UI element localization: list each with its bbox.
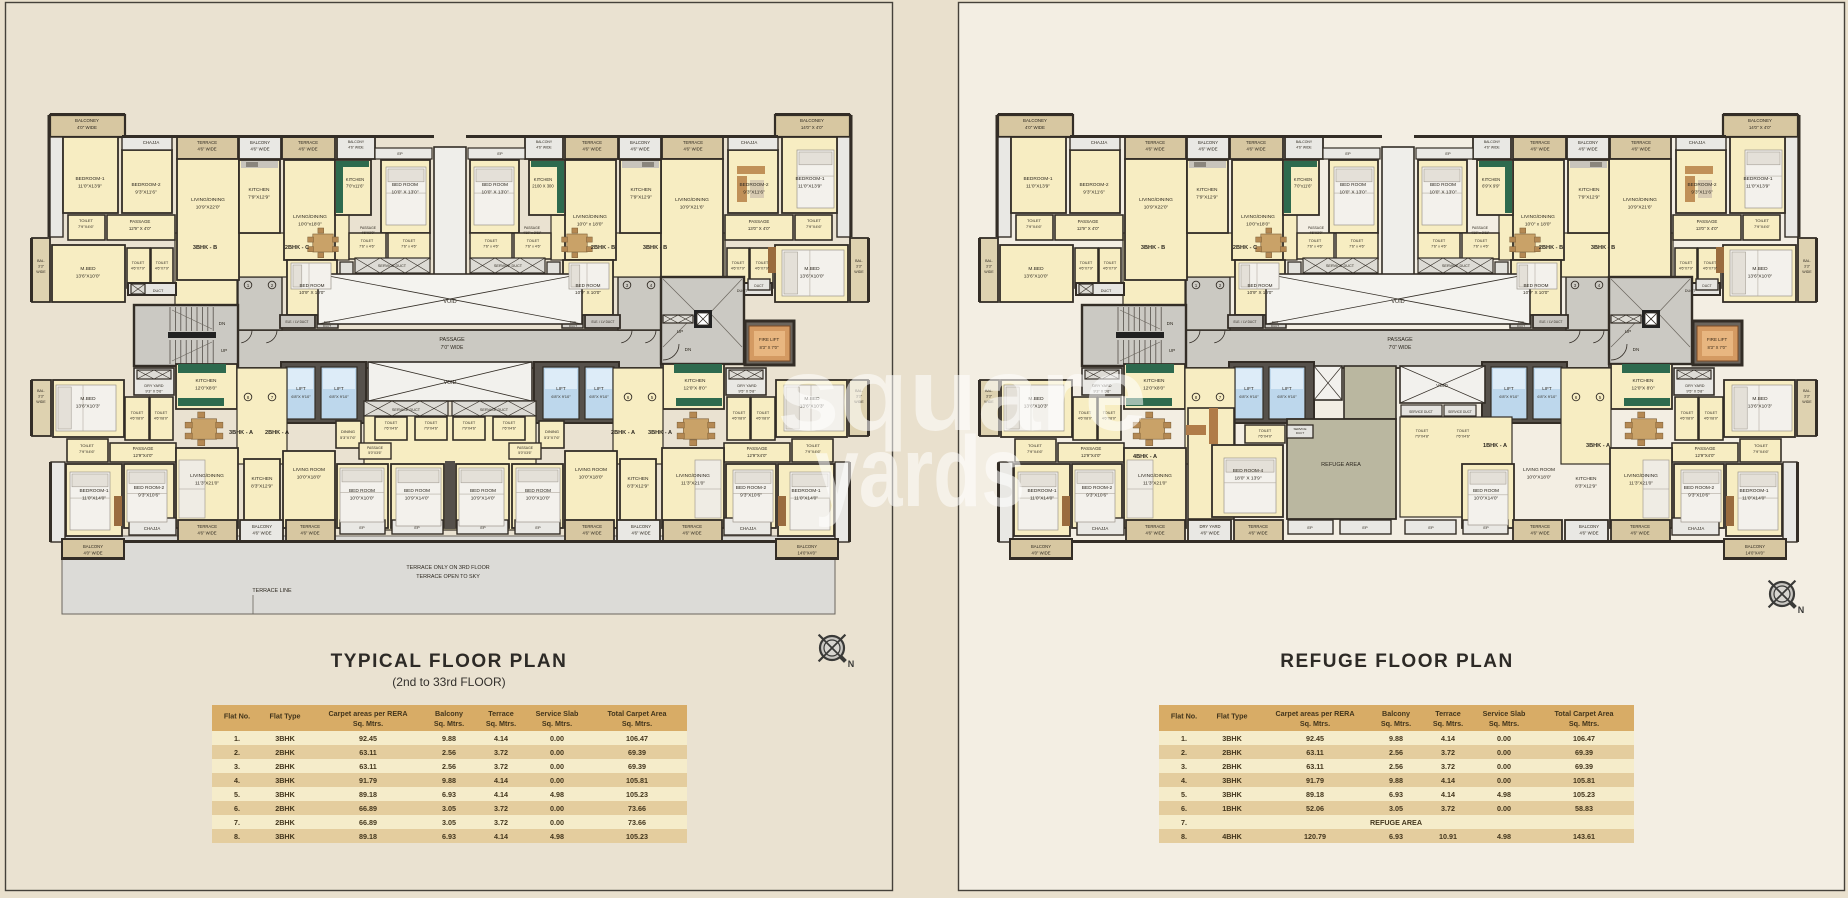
svg-text:4'6"X7'9": 4'6"X7'9" [131,267,146,271]
svg-text:7'9"X4'6": 7'9"X4'6" [1753,449,1770,454]
svg-text:3BHK - B: 3BHK - B [1141,245,1165,251]
svg-text:3.72: 3.72 [1441,762,1455,771]
svg-text:6'8"X 9'10": 6'8"X 9'10" [1277,394,1297,399]
svg-text:12'9"X4'0": 12'9"X4'0" [747,453,767,458]
svg-text:7'9"X4'6": 7'9"X4'6" [78,224,95,229]
svg-text:LIVING/DINING: LIVING/DINING [573,214,607,220]
svg-text:LIVING/DINING: LIVING/DINING [1521,214,1555,220]
svg-text:11'0"X13'9": 11'0"X13'9" [798,184,822,190]
svg-text:1BHK: 1BHK [1222,804,1242,813]
svg-text:BED ROOM-4: BED ROOM-4 [1233,468,1264,474]
svg-text:TERRACE: TERRACE [300,524,320,529]
svg-text:4'6"X7'9": 4'6"X7'9" [1679,267,1694,271]
svg-text:66.89: 66.89 [359,804,377,813]
svg-text:PASSAGE: PASSAGE [517,446,534,450]
svg-text:4'6"X7'9": 4'6"X7'9" [755,267,770,271]
svg-text:TERRACE: TERRACE [1248,524,1268,529]
svg-text:CHAJJA: CHAJJA [1092,526,1109,531]
svg-text:3BHK - A: 3BHK - A [229,430,253,436]
svg-text:BALCONEY: BALCONEY [1748,118,1772,123]
svg-text:3.72: 3.72 [494,804,508,813]
svg-text:LIVING/DINING: LIVING/DINING [1139,197,1173,203]
svg-text:6'8"X 9'10": 6'8"X 9'10" [291,394,311,399]
svg-text:TOILET: TOILET [503,421,516,425]
svg-text:13'6"X10'0": 13'6"X10'0" [1748,274,1773,280]
svg-text:7'6"X4'6": 7'6"X4'6" [502,427,517,431]
svg-text:8.: 8. [234,832,240,841]
svg-text:LIVING ROOM: LIVING ROOM [293,467,325,473]
svg-text:8: 8 [1195,395,1198,400]
svg-text:PASSAGE: PASSAGE [1695,446,1716,451]
svg-text:BEDROOM-1: BEDROOM-1 [795,176,824,182]
svg-text:0.00: 0.00 [1497,762,1511,771]
svg-text:7.: 7. [234,818,240,827]
svg-text:DRY YARD: DRY YARD [1199,524,1220,529]
svg-text:4'6" WIDE: 4'6" WIDE [582,147,601,152]
svg-text:BED ROOM: BED ROOM [1430,182,1456,188]
svg-text:BED ROOM: BED ROOM [299,283,324,288]
svg-text:4'6" WIDE: 4'6" WIDE [1248,531,1267,536]
svg-text:TERRACE ONLY ON 3RD FLOOR: TERRACE ONLY ON 3RD FLOOR [406,565,489,571]
svg-text:BED ROOM: BED ROOM [349,488,375,494]
svg-text:11'3"X21'0": 11'3"X21'0" [1143,481,1167,487]
svg-text:ELE. / LV DUCT: ELE. / LV DUCT [592,320,615,324]
svg-text:SERVICE DUCT: SERVICE DUCT [1326,264,1355,268]
svg-text:DRY YARD: DRY YARD [144,384,163,388]
svg-text:4'6" WIDE: 4'6" WIDE [1579,531,1598,536]
svg-text:ELE. / LV DUCT: ELE. / LV DUCT [286,320,309,324]
svg-text:CHAJJA: CHAJJA [740,526,757,531]
svg-text:4'6" WIDE: 4'6" WIDE [252,531,271,536]
svg-text:9'5" X 5'8": 9'5" X 5'8" [738,390,756,394]
svg-text:KITCHEN: KITCHEN [684,378,706,384]
svg-text:4'6" WIDE: 4'6" WIDE [348,146,364,150]
svg-text:8'3"X12'9": 8'3"X12'9" [1575,484,1597,490]
svg-text:9'5" X 5'8": 9'5" X 5'8" [1686,390,1704,394]
svg-text:TERRACE OPEN TO SKY: TERRACE OPEN TO SKY [416,574,480,580]
svg-text:TERRACE: TERRACE [1145,140,1165,145]
svg-text:73.66: 73.66 [628,804,646,813]
svg-text:8'3" X 7'0": 8'3" X 7'0" [1707,345,1727,350]
svg-text:BED ROOM: BED ROOM [575,283,600,288]
svg-text:BEDROOM-1: BEDROOM-1 [1023,176,1052,182]
svg-text:9.88: 9.88 [1389,776,1403,785]
svg-text:3: 3 [1574,283,1577,288]
svg-text:9'3"X11'6": 9'3"X11'6" [743,190,765,196]
svg-text:PASSAGE: PASSAGE [1472,226,1489,230]
svg-text:Sq. Mtrs.: Sq. Mtrs. [434,719,464,728]
svg-text:TERRACE: TERRACE [682,524,702,529]
svg-text:4'0" WIDE: 4'0" WIDE [1025,125,1045,130]
svg-text:BED ROOM: BED ROOM [1340,182,1366,188]
svg-text:LIVING/DINING: LIVING/DINING [1623,197,1657,203]
svg-text:KITCHEN: KITCHEN [534,177,552,182]
svg-text:LIFT: LIFT [1282,386,1292,391]
svg-text:3BHK - A: 3BHK - A [1586,443,1610,449]
svg-text:7'0" WIDE: 7'0" WIDE [1389,345,1412,351]
svg-text:DUCT: DUCT [737,289,748,293]
svg-text:PASSAGE: PASSAGE [747,446,768,451]
svg-text:Terrace: Terrace [488,709,513,718]
svg-text:9'3"X10'6": 9'3"X10'6" [740,493,762,499]
svg-text:3BHK: 3BHK [1222,790,1242,799]
svg-text:SERVICE DUCT: SERVICE DUCT [1448,410,1472,414]
svg-text:WIDE: WIDE [1802,270,1812,274]
svg-text:LIFT: LIFT [334,386,344,391]
svg-text:BAL.: BAL. [37,259,45,263]
svg-text:TERRACE: TERRACE [683,140,703,145]
svg-text:10'9" X 10'0": 10'9" X 10'0" [1247,290,1273,295]
svg-text:BED ROOM: BED ROOM [525,488,551,494]
svg-text:DUCT: DUCT [323,324,331,328]
svg-text:Flat Type: Flat Type [1216,712,1247,721]
svg-text:9'3"X10'6": 9'3"X10'6" [138,493,160,499]
svg-text:LIFT: LIFT [1244,386,1254,391]
svg-text:6: 6 [627,395,630,400]
svg-text:69.39: 69.39 [628,762,646,771]
svg-text:SERVICE DUCT: SERVICE DUCT [392,408,421,412]
svg-text:7'6"X4'0": 7'6"X4'0" [1258,435,1273,439]
svg-text:SERVICE DUCT: SERVICE DUCT [480,408,509,412]
svg-text:2: 2 [271,283,274,288]
svg-text:Service Slab: Service Slab [1483,709,1526,718]
svg-text:DN: DN [219,321,226,326]
svg-text:TOILET: TOILET [1416,429,1429,433]
svg-text:4.98: 4.98 [1497,832,1511,841]
svg-text:4'6" WIDE: 4'6" WIDE [1198,147,1217,152]
svg-text:6'8"X 9'10": 6'8"X 9'10" [329,394,349,399]
svg-text:6.93: 6.93 [1389,832,1403,841]
svg-text:BED ROOM-2: BED ROOM-2 [1684,485,1715,491]
svg-text:3BHK: 3BHK [275,832,295,841]
svg-text:5: 5 [1599,395,1602,400]
svg-text:4'6" WIDE: 4'6" WIDE [298,147,317,152]
svg-text:7'6" x 4'6": 7'6" x 4'6" [401,245,417,249]
svg-text:0.00: 0.00 [550,734,564,743]
svg-text:BALCONY: BALCONY [1031,544,1051,549]
svg-text:LIFT: LIFT [594,386,604,391]
svg-text:6.93: 6.93 [442,832,456,841]
svg-text:14'0" X 4'0": 14'0" X 4'0" [801,125,824,130]
svg-text:Carpet areas per RERA: Carpet areas per RERA [328,709,407,718]
svg-text:4'6"X8'0": 4'6"X8'0" [130,417,145,421]
svg-text:LIFT: LIFT [1542,386,1552,391]
svg-text:3BHK: 3BHK [275,790,295,799]
svg-text:6.: 6. [1181,804,1187,813]
svg-text:0.00: 0.00 [1497,804,1511,813]
svg-text:TOILET: TOILET [1080,261,1093,265]
svg-text:8'3"X12'9": 8'3"X12'9" [627,484,649,490]
svg-text:10'0"X10'0": 10'0"X10'0" [526,496,551,502]
svg-text:66.89: 66.89 [359,818,377,827]
svg-text:11'3"X21'0": 11'3"X21'0" [1629,481,1653,487]
svg-text:Sq. Mtrs.: Sq. Mtrs. [1433,719,1463,728]
svg-text:10'9"X14'0": 10'9"X14'0" [405,496,430,502]
svg-text:4'6"X7'9": 4'6"X7'9" [1103,267,1118,271]
svg-text:WIDE: WIDE [984,270,994,274]
svg-text:5.: 5. [1181,790,1187,799]
svg-text:11'3"X21'0": 11'3"X21'0" [681,481,705,487]
svg-text:0.00: 0.00 [550,748,564,757]
svg-text:4BHK - A: 4BHK - A [1133,454,1157,460]
svg-text:TOILET: TOILET [807,218,821,223]
svg-text:TOILET: TOILET [1104,261,1117,265]
svg-text:6.93: 6.93 [1389,790,1403,799]
svg-text:TERRACE: TERRACE [1530,140,1550,145]
svg-text:4.14: 4.14 [1441,734,1455,743]
svg-text:105.81: 105.81 [626,776,648,785]
svg-text:13'0" X 4'0": 13'0" X 4'0" [748,226,771,231]
svg-text:11'3"X21'0": 11'3"X21'0" [195,481,219,487]
svg-text:4'6" WIDE: 4'6" WIDE [1484,146,1500,150]
svg-text:14'0"X4'0": 14'0"X4'0" [797,551,817,556]
svg-text:LIVING ROOM: LIVING ROOM [575,467,607,473]
svg-text:6'8"X 9'10": 6'8"X 9'10" [1499,394,1519,399]
svg-text:BALCONY: BALCONY [1484,140,1501,144]
svg-text:7'9"X12'9": 7'9"X12'9" [1578,195,1600,201]
svg-text:DUCT: DUCT [569,324,577,328]
svg-text:Terrace: Terrace [1435,709,1460,718]
svg-text:LIVING/DINING: LIVING/DINING [293,214,327,220]
svg-text:10'0" x 18'0": 10'0" x 18'0" [577,222,604,228]
svg-text:2BHK - C: 2BHK - C [285,245,309,251]
svg-text:10'0"X18'0": 10'0"X18'0" [1527,475,1552,481]
svg-text:4'6" WIDE: 4'6" WIDE [1246,147,1265,152]
svg-text:TERRACE: TERRACE [298,140,318,145]
svg-text:M.BED: M.BED [80,396,96,402]
svg-text:2BHK - B: 2BHK - B [591,245,615,251]
svg-text:4'6"X7'9": 4'6"X7'9" [1079,267,1094,271]
svg-text:1: 1 [1195,283,1198,288]
svg-text:WIDE: WIDE [854,270,864,274]
svg-text:BALCONY: BALCONY [1578,140,1598,145]
svg-text:BED ROOM: BED ROOM [1523,283,1548,288]
svg-text:4.14: 4.14 [494,832,508,841]
svg-text:10'0"X18'0": 10'0"X18'0" [579,475,604,481]
svg-text:N: N [848,659,855,669]
svg-text:TOILET: TOILET [156,261,169,265]
svg-text:TOILET: TOILET [80,443,94,448]
svg-text:63.11: 63.11 [359,748,377,757]
svg-text:LIVING/DINING: LIVING/DINING [191,197,225,203]
svg-text:2BHK: 2BHK [275,762,295,771]
svg-text:KITCHEN: KITCHEN [1482,177,1500,182]
svg-text:PASSAGE: PASSAGE [1308,226,1325,230]
svg-text:BED ROOM: BED ROOM [482,182,508,188]
svg-text:LIVING ROOM: LIVING ROOM [1523,467,1555,473]
svg-text:3.72: 3.72 [494,748,508,757]
svg-text:KITCHEN: KITCHEN [630,187,652,193]
svg-text:DUCT: DUCT [1271,324,1279,328]
svg-text:7.: 7. [1181,818,1187,827]
svg-text:3BHK: 3BHK [275,734,295,743]
svg-text:4'6"X7'9": 4'6"X7'9" [155,267,170,271]
svg-text:91.79: 91.79 [359,776,377,785]
svg-text:4'6" WIDE: 4'6" WIDE [250,147,269,152]
svg-text:105.23: 105.23 [626,832,648,841]
svg-text:REFUGE AREA: REFUGE AREA [1370,818,1422,827]
svg-text:2.56: 2.56 [1389,748,1403,757]
svg-text:10'9"X21'6": 10'9"X21'6" [1628,205,1653,211]
svg-text:5: 5 [651,395,654,400]
svg-text:KITCHEN: KITCHEN [195,378,217,384]
svg-text:TOILET: TOILET [1705,411,1718,415]
svg-text:(2nd to 33rd FLOOR): (2nd to 33rd FLOOR) [392,675,505,689]
svg-text:7'6" x 4'6": 7'6" x 4'6" [1307,245,1323,249]
svg-text:PASSAGE: PASSAGE [1697,219,1718,224]
svg-text:3BHK - B: 3BHK - B [193,245,217,251]
svg-text:EP: EP [1483,525,1489,530]
svg-text:BALCONY: BALCONY [1745,544,1765,549]
svg-text:3BHK - B: 3BHK - B [1591,245,1615,251]
svg-text:10'0"x18'0": 10'0"x18'0" [298,222,322,228]
svg-text:TYPICAL FLOOR PLAN: TYPICAL FLOOR PLAN [331,651,568,672]
svg-text:10'9"X21'6": 10'9"X21'6" [680,205,705,211]
svg-text:69.39: 69.39 [1575,762,1593,771]
svg-text:4.: 4. [1181,776,1187,785]
svg-text:0.00: 0.00 [1497,734,1511,743]
svg-text:12'9" X 4'0": 12'9" X 4'0" [1077,226,1100,231]
svg-text:WIDE: WIDE [36,270,46,274]
svg-text:Sq. Mtrs.: Sq. Mtrs. [1300,719,1330,728]
svg-text:105.23: 105.23 [1573,790,1595,799]
svg-text:92.45: 92.45 [359,734,377,743]
svg-text:BED ROOM: BED ROOM [1473,488,1499,494]
svg-text:3.: 3. [234,762,240,771]
svg-text:DUCT: DUCT [1517,324,1525,328]
svg-text:VOID: VOID [444,380,457,386]
svg-text:3.05: 3.05 [442,804,456,813]
svg-text:4'6" WIDE: 4'6" WIDE [631,531,650,536]
svg-text:0.00: 0.00 [1497,748,1511,757]
svg-text:M.BED: M.BED [80,266,96,272]
svg-text:14'0"X4'0": 14'0"X4'0" [1745,551,1765,556]
svg-text:7'9"X4'6": 7'9"X4'6" [1026,224,1043,229]
svg-text:11'0"X13'9": 11'0"X13'9" [1746,184,1770,190]
svg-text:10'0"X14'0": 10'0"X14'0" [1474,496,1499,502]
svg-text:N: N [1798,605,1805,615]
svg-text:18'0" X 13'9": 18'0" X 13'9" [1234,476,1261,482]
svg-text:KITCHEN: KITCHEN [1632,378,1654,384]
svg-text:BALCONY: BALCONY [797,544,817,549]
svg-text:9'3"X11'6": 9'3"X11'6" [135,190,157,196]
svg-text:9'3"X10'6": 9'3"X10'6" [1688,493,1710,499]
svg-text:TOILET: TOILET [1754,443,1768,448]
svg-text:BALCONY: BALCONY [250,140,270,145]
svg-text:11'0"X13'9": 11'0"X13'9" [1026,184,1050,190]
svg-text:M.BED: M.BED [804,266,820,272]
svg-text:12'0"X 8'0": 12'0"X 8'0" [683,386,706,392]
svg-text:4'6"X8'0": 4'6"X8'0" [732,417,747,421]
svg-text:BEDROOM-2: BEDROOM-2 [1079,182,1108,188]
svg-text:8: 8 [247,395,250,400]
svg-text:TOILET: TOILET [527,239,540,243]
svg-text:6'8"X 9'10": 6'8"X 9'10" [1239,394,1259,399]
svg-text:11'0"X14'0": 11'0"X14'0" [1030,496,1054,502]
svg-text:3.72: 3.72 [494,762,508,771]
svg-text:3'3": 3'3" [38,395,45,399]
svg-text:10'9"X14'0": 10'9"X14'0" [471,496,496,502]
svg-text:7'9"X12'9": 7'9"X12'9" [248,195,270,201]
svg-text:TOILET: TOILET [132,261,145,265]
svg-text:UP: UP [221,348,227,353]
svg-text:10.91: 10.91 [1439,832,1457,841]
svg-text:92.45: 92.45 [1306,734,1324,743]
svg-text:DN: DN [685,347,692,352]
svg-text:ELE. / LV DUCT: ELE. / LV DUCT [1540,320,1563,324]
svg-text:4'6" WIDE: 4'6" WIDE [197,147,216,152]
svg-text:BED ROOM: BED ROOM [1247,283,1272,288]
svg-text:TERRACE: TERRACE [197,140,217,145]
svg-text:3.05: 3.05 [1389,804,1403,813]
svg-text:SERVICE DUCT: SERVICE DUCT [1442,264,1471,268]
svg-text:M.BED: M.BED [1028,266,1044,272]
svg-text:2BHK - A: 2BHK - A [265,430,289,436]
svg-text:8.: 8. [1181,832,1187,841]
svg-text:6'9"X 9'9": 6'9"X 9'9" [1482,184,1500,189]
svg-text:1: 1 [247,283,250,288]
svg-text:Sq. Mtrs.: Sq. Mtrs. [353,719,383,728]
svg-text:DUCT: DUCT [1702,284,1711,288]
svg-text:3'3": 3'3" [1804,395,1811,399]
svg-text:4'6" WIDE: 4'6" WIDE [1530,531,1549,536]
svg-text:KITCHEN: KITCHEN [627,476,649,482]
svg-text:TOILET: TOILET [403,239,416,243]
svg-text:TERRACE: TERRACE [197,524,217,529]
svg-text:3.72: 3.72 [494,818,508,827]
svg-text:TOILET: TOILET [1433,239,1446,243]
svg-text:TOILET: TOILET [733,411,746,415]
svg-text:3BHK - A: 3BHK - A [648,430,672,436]
svg-text:BAL.: BAL. [855,259,863,263]
svg-text:LIFT: LIFT [1504,386,1514,391]
svg-text:10'0" X 13'0": 10'0" X 13'0" [391,190,418,196]
svg-text:12'9" X 4'0": 12'9" X 4'0" [129,226,152,231]
svg-text:Sq. Mtrs.: Sq. Mtrs. [542,719,572,728]
svg-text:BALCONY: BALCONY [631,524,651,529]
svg-text:TERRACE: TERRACE [582,140,602,145]
svg-text:TOILET: TOILET [757,411,770,415]
svg-text:2.: 2. [234,748,240,757]
svg-text:4.14: 4.14 [494,776,508,785]
svg-text:2BHK - A: 2BHK - A [611,430,635,436]
svg-text:3: 3 [626,283,629,288]
svg-text:4'6" WIDE: 4'6" WIDE [1578,147,1597,152]
svg-text:63.11: 63.11 [359,762,377,771]
svg-text:2.56: 2.56 [442,762,456,771]
svg-text:EP: EP [1345,151,1351,156]
svg-text:6'8"X 9'10": 6'8"X 9'10" [551,394,571,399]
svg-text:LIVING/DINING: LIVING/DINING [675,197,709,203]
svg-text:4'6" WIDE: 4'6" WIDE [300,531,319,536]
svg-text:PASSAGE: PASSAGE [367,446,384,450]
svg-text:LIVING/DINING: LIVING/DINING [1241,214,1275,220]
svg-text:6: 6 [1575,395,1578,400]
svg-text:7'9"X4'6": 7'9"X4'6" [462,427,477,431]
svg-text:4'0" WIDE: 4'0" WIDE [1031,551,1050,556]
svg-text:10'9" X 10'0": 10'9" X 10'0" [1523,290,1549,295]
svg-text:Total Carpet Area: Total Carpet Area [1554,709,1614,718]
svg-text:EP: EP [1362,525,1368,530]
svg-text:Sq. Mtrs.: Sq. Mtrs. [1381,719,1411,728]
svg-text:2.56: 2.56 [1389,762,1403,771]
svg-text:7'9"X12'9": 7'9"X12'9" [1196,195,1218,201]
svg-text:KITCHEN: KITCHEN [346,177,364,182]
svg-text:BEDROOM-1: BEDROOM-1 [75,176,104,182]
svg-text:10'9"X22'0": 10'9"X22'0" [1144,205,1169,211]
svg-text:2.: 2. [1181,748,1187,757]
svg-text:TOILET: TOILET [1309,239,1322,243]
